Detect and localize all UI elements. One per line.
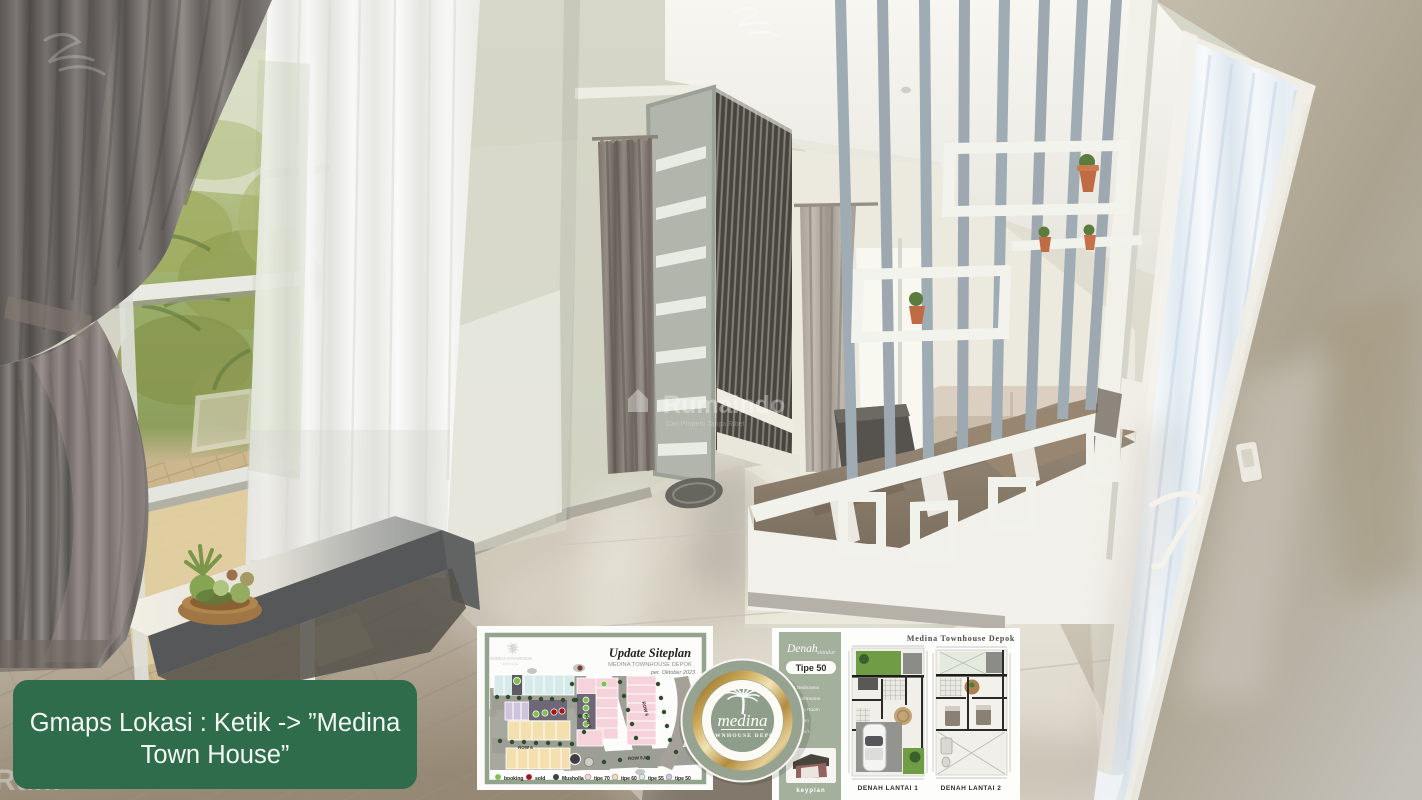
- svg-text:booking: booking: [504, 776, 523, 782]
- svg-text:tipe 70: tipe 70: [594, 776, 610, 782]
- svg-text:tipe 60: tipe 60: [621, 776, 637, 782]
- svg-text:DEPOK: DEPOK: [503, 662, 520, 666]
- svg-text:ROW 6,5: ROW 6,5: [628, 755, 647, 761]
- svg-text:Medina Townhouse Depok: Medina Townhouse Depok: [907, 634, 1015, 643]
- svg-text:tipe 50: tipe 50: [675, 776, 691, 782]
- svg-text:Musholla: Musholla: [562, 776, 584, 782]
- svg-text:sold: sold: [535, 776, 545, 782]
- svg-text:Gmaps Lokasi : Ketik -> ”Medin: Gmaps Lokasi : Ketik -> ”Medina: [30, 709, 401, 737]
- svg-text:standar: standar: [817, 650, 836, 656]
- svg-text:medina: medina: [717, 711, 767, 730]
- svg-text:Denah: Denah: [786, 643, 818, 655]
- svg-text:keyplan: keyplan: [796, 788, 825, 794]
- svg-text:Update Siteplan: Update Siteplan: [609, 646, 691, 660]
- svg-text:MEDINA TOWNHOUSE: MEDINA TOWNHOUSE: [490, 656, 533, 661]
- svg-text:TOWNHOUSE DEPOK: TOWNHOUSE DEPOK: [705, 733, 781, 739]
- svg-text:MEDINA TOWNHOUSE DEPOK: MEDINA TOWNHOUSE DEPOK: [608, 662, 692, 668]
- svg-text:Tipe 50: Tipe 50: [796, 663, 827, 673]
- svg-text:Town House”: Town House”: [141, 741, 290, 769]
- svg-text:DENAH LANTAI 2: DENAH LANTAI 2: [941, 785, 1002, 792]
- svg-text:tipe 55: tipe 55: [648, 776, 664, 782]
- svg-text:DENAH LANTAI 1: DENAH LANTAI 1: [858, 785, 919, 792]
- svg-text:ROW 6: ROW 6: [518, 745, 533, 750]
- svg-text:per. Oktober 2023: per. Oktober 2023: [650, 670, 696, 676]
